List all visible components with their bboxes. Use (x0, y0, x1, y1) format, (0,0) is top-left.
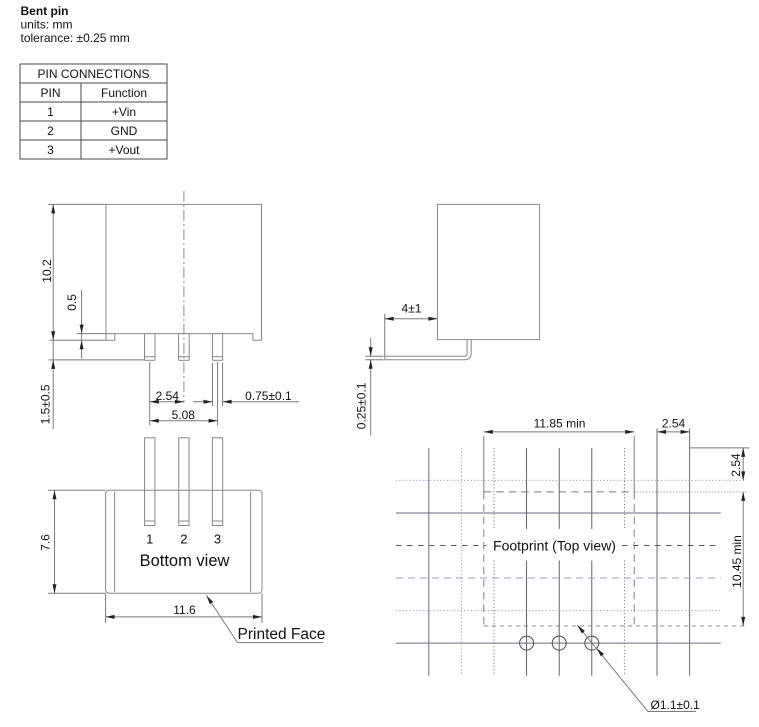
svg-text:Bottom view: Bottom view (140, 552, 230, 570)
svg-text:Bent pin: Bent pin (21, 4, 69, 18)
svg-text:0.25±0.1: 0.25±0.1 (354, 382, 368, 429)
svg-text:PIN: PIN (40, 86, 60, 100)
svg-text:Ø1.1±0.1: Ø1.1±0.1 (651, 698, 701, 712)
svg-text:4±1: 4±1 (402, 302, 422, 316)
svg-text:3: 3 (47, 143, 54, 157)
svg-text:7.6: 7.6 (38, 534, 52, 551)
svg-text:2.54: 2.54 (662, 417, 686, 431)
svg-text:tolerance: ±0.25 mm: tolerance: ±0.25 mm (21, 31, 130, 45)
svg-text:5.08: 5.08 (172, 408, 196, 422)
svg-text:0.5: 0.5 (65, 294, 79, 311)
svg-text:GND: GND (111, 124, 138, 138)
svg-text:0.75±0.1: 0.75±0.1 (245, 389, 292, 403)
svg-text:2.54: 2.54 (729, 453, 743, 477)
svg-text:2: 2 (47, 124, 54, 138)
svg-text:1: 1 (146, 532, 153, 547)
svg-text:PIN CONNECTIONS: PIN CONNECTIONS (37, 67, 149, 81)
svg-text:Function: Function (101, 86, 147, 100)
svg-text:+Vin: +Vin (112, 105, 136, 119)
svg-text:Footprint (Top view): Footprint (Top view) (493, 537, 616, 553)
svg-text:1: 1 (47, 105, 54, 119)
svg-text:11.85 min: 11.85 min (534, 417, 586, 431)
svg-text:1.5±0.5: 1.5±0.5 (39, 384, 53, 424)
svg-text:Printed Face: Printed Face (238, 626, 326, 643)
svg-text:units: mm: units: mm (21, 17, 73, 31)
svg-text:3: 3 (214, 532, 221, 547)
svg-text:2.54: 2.54 (156, 389, 180, 403)
svg-text:2: 2 (180, 532, 187, 547)
svg-text:11.6: 11.6 (173, 603, 196, 617)
svg-text:10.45 min: 10.45 min (730, 535, 744, 588)
svg-text:+Vout: +Vout (108, 143, 140, 157)
svg-text:10.2: 10.2 (40, 259, 54, 283)
